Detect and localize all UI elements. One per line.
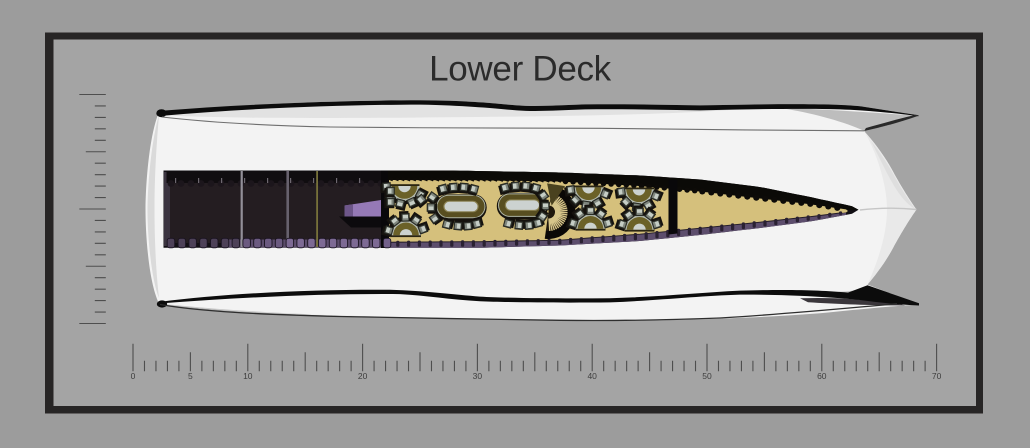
svg-text:0: 0: [131, 371, 136, 381]
svg-text:60: 60: [817, 371, 827, 381]
svg-text:30: 30: [473, 371, 483, 381]
svg-text:50: 50: [702, 371, 712, 381]
svg-text:40: 40: [587, 371, 597, 381]
svg-text:Lower Deck: Lower Deck: [429, 50, 612, 89]
svg-text:70: 70: [932, 371, 942, 381]
svg-text:5: 5: [188, 371, 193, 381]
svg-text:10: 10: [243, 371, 253, 381]
svg-text:20: 20: [358, 371, 368, 381]
